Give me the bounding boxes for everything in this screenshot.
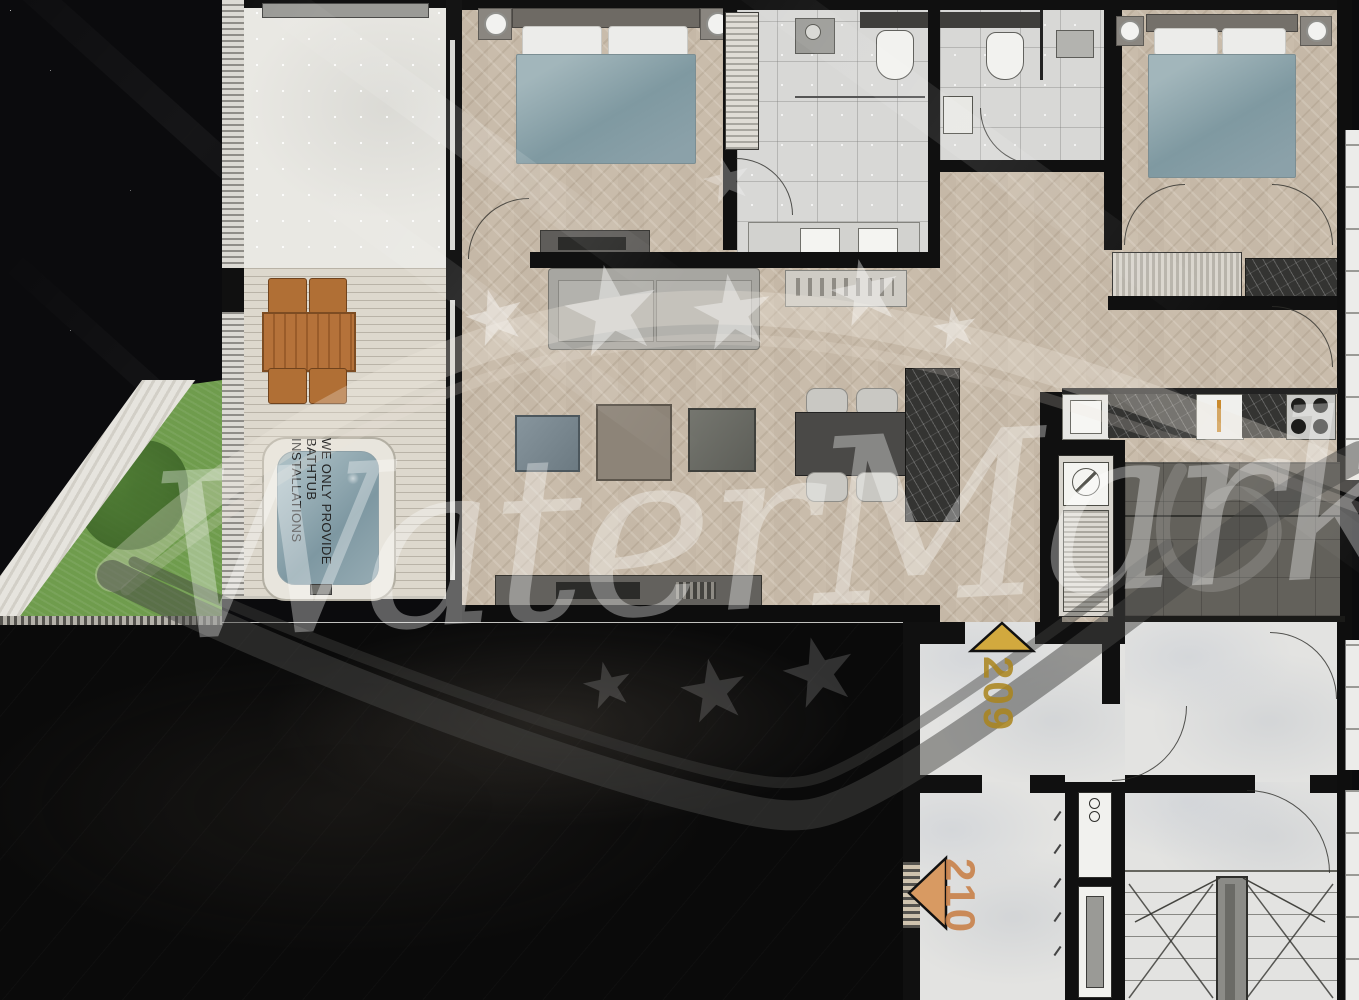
up-triangle-icon	[967, 620, 1037, 654]
star-icon: ★	[548, 242, 675, 379]
floor-plan-canvas: WE ONLY PROVIDE BATHTUB INSTALLATIONS	[0, 0, 1359, 1000]
star-icon: ★	[681, 256, 784, 368]
star-icon: ★	[669, 642, 758, 738]
star-icon: ★	[926, 296, 985, 360]
watermark-logo: WaterMark	[0, 0, 1359, 1000]
room-marker-209: 209	[974, 656, 1022, 740]
room-marker-210: 210	[936, 858, 984, 942]
